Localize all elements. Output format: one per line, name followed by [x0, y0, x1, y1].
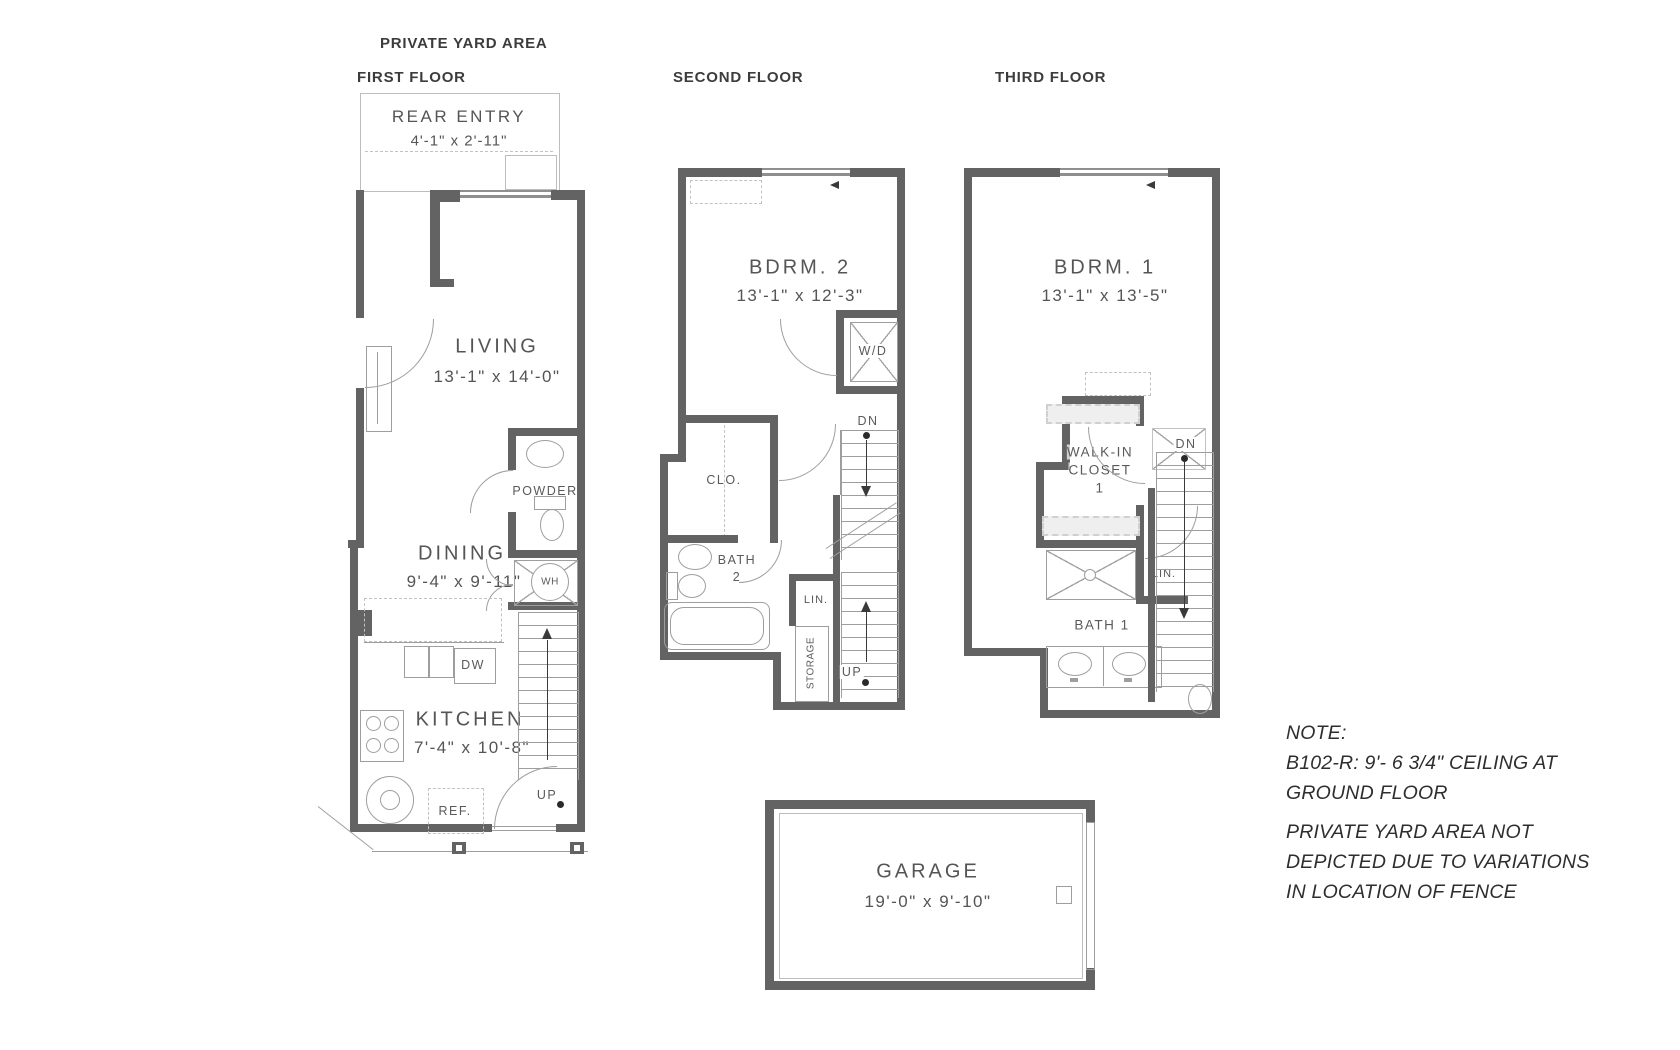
upper-cabinets — [364, 598, 502, 642]
garage-label: GARAGE — [876, 861, 980, 884]
powder-label: POWDER — [512, 484, 577, 498]
door-swing-arc — [296, 250, 434, 388]
wall-segment — [836, 310, 905, 318]
wall-segment — [765, 800, 1095, 809]
toilet-tank — [534, 496, 566, 510]
closet-dashed-outline — [690, 180, 762, 204]
door-swing-arc — [722, 367, 836, 481]
note-yard-line3: IN LOCATION OF FENCE — [1286, 877, 1680, 907]
stair-label-dot — [1181, 455, 1188, 462]
rear-entry-dims: 4'-1" x 2'-11" — [411, 133, 508, 150]
powder-sink — [526, 440, 564, 468]
wall-segment — [508, 428, 516, 470]
wall-segment — [678, 168, 762, 177]
wall-segment — [1086, 968, 1095, 990]
private-yard-area-label: PRIVATE YARD AREA — [380, 35, 548, 52]
wall-segment — [1036, 540, 1144, 548]
wall-segment — [765, 981, 1095, 990]
stair-arrow-down-icon — [1179, 608, 1189, 619]
stair-arrow-shaft — [866, 612, 867, 662]
wall-segment — [348, 540, 364, 548]
vanity-sink — [1112, 652, 1146, 676]
water-heater-label: WH — [541, 577, 559, 588]
stairs-down-label: DN — [855, 414, 880, 428]
window — [460, 190, 552, 198]
second-floor-title: SECOND FLOOR — [673, 69, 803, 86]
living-dims: 13'-1" x 14'-0" — [433, 367, 560, 387]
bedroom1-dims: 13'-1" x 13'-5" — [1041, 286, 1168, 306]
door-threshold — [492, 830, 556, 831]
stair-label-dot — [863, 432, 870, 439]
kitchen-dims: 7'-4" x 10'-8" — [414, 738, 530, 758]
wall-segment — [430, 279, 454, 287]
stair-label-dot — [557, 801, 564, 808]
round-sink-inner — [380, 790, 400, 810]
garage-dims: 19'-0" x 9'-10" — [864, 892, 991, 912]
wall-segment — [356, 388, 364, 548]
note-ceiling-line1: B102-R: 9'- 6 3/4" CEILING AT — [1286, 748, 1680, 778]
bath2-sink — [678, 544, 712, 570]
refrigerator-label: REF. — [438, 804, 471, 818]
wall-segment — [1136, 548, 1144, 602]
vanity-divider — [1103, 646, 1104, 686]
stair-arrow-shaft — [866, 440, 867, 488]
walkin-closet-label-line3: 1 — [1095, 481, 1104, 496]
wall-segment — [508, 550, 585, 558]
fence-line — [372, 851, 588, 852]
kitchen-label: KITCHEN — [416, 709, 525, 732]
living-builtin-line — [377, 352, 378, 424]
wall-segment — [678, 415, 778, 423]
kitchen-sink-basin — [404, 646, 430, 678]
stove-burner — [366, 738, 381, 753]
third-floor-title: THIRD FLOOR — [995, 69, 1106, 86]
wall-segment — [350, 636, 358, 832]
window — [762, 168, 850, 176]
living-builtin — [366, 346, 392, 432]
bath1-label: BATH 1 — [1074, 618, 1129, 633]
rear-entry-stoop — [505, 155, 557, 190]
floorplan-canvas: PRIVATE YARD AREA FIRST FLOOR SECOND FLO… — [0, 0, 1680, 1050]
storage-label: STORAGE — [806, 637, 817, 689]
stove-burner — [384, 716, 399, 731]
wall-segment — [508, 428, 585, 436]
bath2-label-line1: BATH — [718, 553, 756, 567]
wall-segment — [789, 574, 796, 626]
wall-segment — [1086, 800, 1095, 822]
shower-drain — [1084, 569, 1096, 581]
window — [1060, 168, 1168, 176]
bathtub-inner — [670, 607, 764, 645]
note-block: NOTE: B102-R: 9'- 6 3/4" CEILING AT GROU… — [1286, 718, 1680, 907]
bath2-label-line2: 2 — [733, 570, 741, 584]
stairs-third-floor — [1156, 452, 1214, 692]
note-gap — [1286, 808, 1680, 817]
wall-segment — [836, 310, 844, 394]
note-heading: NOTE: — [1286, 718, 1680, 748]
note-ceiling-line2: GROUND FLOOR — [1286, 778, 1680, 808]
kitchen-sink-basin — [428, 646, 454, 678]
washer-dryer-label: W/D — [857, 344, 890, 358]
stove-burner — [384, 738, 399, 753]
wall-segment — [770, 415, 778, 543]
closet-label: CLO. — [706, 473, 741, 487]
stair-arrow-shaft — [1184, 462, 1185, 610]
faucet-mark — [1070, 678, 1078, 682]
counter-edge — [364, 642, 504, 643]
wall-segment — [556, 824, 585, 832]
wall-segment — [964, 168, 1060, 177]
dishwasher-label: DW — [461, 658, 485, 672]
wall-segment — [350, 548, 358, 618]
stair-arrow-up-icon — [542, 628, 552, 639]
rear-entry-dashed-line — [365, 151, 553, 152]
wall-segment — [964, 648, 1048, 656]
wall-segment — [660, 535, 738, 543]
closet-rod-band — [1042, 516, 1140, 536]
window-arrow-icon — [830, 181, 839, 189]
stairs-down-label: DN — [1173, 437, 1198, 451]
stair-arrow-up-icon — [861, 601, 871, 612]
wall-segment — [430, 190, 440, 287]
stove — [360, 710, 404, 762]
bedroom2-dims: 13'-1" x 12'-3" — [736, 286, 863, 306]
stair-arrow-down-icon — [861, 486, 871, 497]
toilet-tank — [666, 572, 678, 600]
stairs-second-floor-lower — [841, 572, 899, 698]
wall-segment — [1148, 488, 1155, 702]
toilet-bowl — [540, 509, 564, 541]
window-arrow-icon — [1146, 181, 1155, 189]
stair-arrow-shaft — [547, 640, 548, 760]
wall-segment — [964, 168, 972, 656]
fence-post-cap — [456, 845, 462, 851]
bedroom1-label: BDRM. 1 — [1054, 257, 1156, 280]
stove-burner — [366, 716, 381, 731]
note-yard-line2: DEPICTED DUE TO VARIATIONS — [1286, 847, 1680, 877]
wall-segment — [1062, 396, 1142, 404]
vanity-sink — [1058, 652, 1092, 676]
living-label: LIVING — [455, 336, 539, 359]
faucet-mark — [1124, 678, 1132, 682]
fence-post-cap — [574, 845, 580, 851]
garage-door — [1086, 822, 1095, 970]
bedroom2-label: BDRM. 2 — [749, 257, 851, 280]
garage-door-motor — [1056, 886, 1072, 904]
rear-entry-label: REAR ENTRY — [392, 107, 526, 127]
wall-segment — [836, 386, 905, 394]
linen-label: LIN. — [804, 594, 828, 606]
note-yard-line1: PRIVATE YARD AREA NOT — [1286, 817, 1680, 847]
stairs-up-label: UP — [840, 665, 864, 679]
stair-label-dot — [862, 679, 869, 686]
toilet-bowl — [678, 574, 706, 598]
closet-rod-band — [1046, 404, 1140, 424]
wall-segment — [765, 800, 774, 990]
first-floor-title: FIRST FLOOR — [357, 69, 466, 86]
wall-segment — [356, 190, 364, 318]
dresser-dashed-outline — [1085, 372, 1151, 396]
wall-segment — [660, 652, 780, 660]
